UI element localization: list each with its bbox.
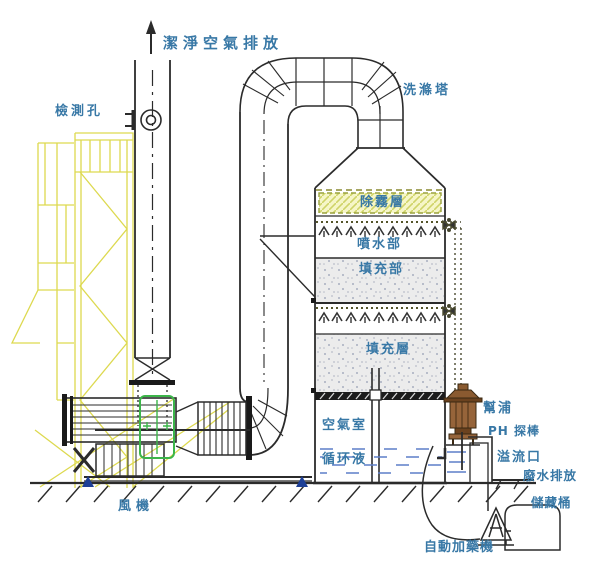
label-wastewater-discharge: 廢水排放 — [523, 470, 577, 483]
label-spray-section: 噴水部 — [357, 238, 402, 251]
label-packing-section: 填充部 — [359, 263, 404, 276]
label-pump: 幫浦 — [483, 402, 513, 415]
label-demister-layer: 除霧層 — [360, 196, 405, 209]
label-packing-layer: 填充層 — [366, 343, 411, 356]
label-air-chamber: 空氣室 — [322, 419, 367, 432]
label-clean-air-outlet: 潔淨空氣排放 — [163, 36, 283, 51]
label-scrubber-tower: 洗滌塔 — [403, 84, 451, 97]
label-ph-probe: PH 探棒 — [488, 425, 540, 437]
spray-nozzles-row1 — [319, 227, 440, 237]
ground — [30, 483, 536, 502]
dosing-hose — [422, 446, 480, 540]
inspection-port-symbol — [125, 110, 161, 130]
scrubber-tower-diagram: 潔淨空氣排放 檢測孔 洗滌塔 除霧層 噴水部 填充部 填充層 空氣室 循环液 幫… — [0, 0, 602, 565]
label-fan: 風機 — [118, 500, 154, 513]
storage-drum-symbol — [505, 505, 560, 550]
label-auto-dosing-machine: 自動加藥機 — [424, 541, 494, 554]
spray-nozzles-row2 — [319, 313, 440, 323]
label-overflow-port: 溢流口 — [497, 451, 542, 464]
diagram-linework — [0, 0, 602, 565]
label-circulating-liquid: 循环液 — [322, 453, 367, 466]
fan-assembly — [62, 394, 312, 487]
clean-air-arrow — [146, 20, 156, 54]
label-storage-tank: 儲藏桶 — [531, 497, 572, 510]
label-inspection-port: 檢測孔 — [55, 105, 103, 118]
